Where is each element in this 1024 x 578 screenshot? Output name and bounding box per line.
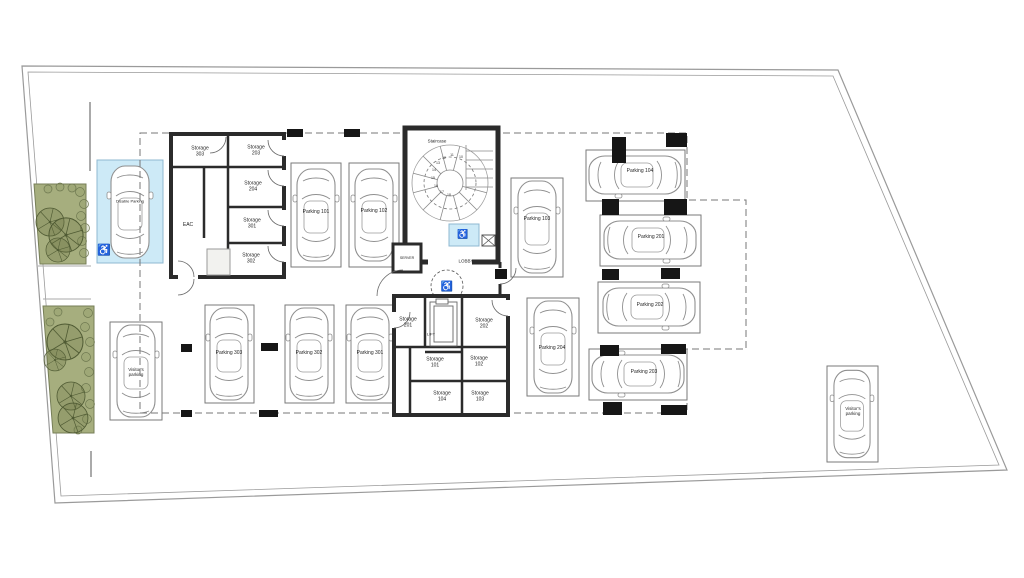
accessible-stair-landing bbox=[449, 224, 479, 246]
car-graphic bbox=[347, 308, 393, 400]
column bbox=[603, 402, 622, 415]
column bbox=[661, 344, 686, 354]
storage-block bbox=[171, 134, 284, 295]
column bbox=[495, 269, 507, 279]
car-graphic bbox=[514, 181, 560, 273]
car-graphic bbox=[530, 301, 576, 393]
column bbox=[664, 199, 687, 215]
column bbox=[666, 133, 687, 147]
server-room bbox=[393, 244, 421, 272]
column bbox=[600, 345, 619, 356]
car-graphic bbox=[113, 325, 159, 417]
car-graphic bbox=[107, 166, 153, 258]
parking-floor-plan: Staircase LOBBY LIFT SERVER EAC Storage … bbox=[0, 0, 1024, 578]
column bbox=[344, 129, 360, 137]
car-graphic bbox=[206, 308, 252, 400]
column bbox=[602, 199, 619, 215]
car-graphic bbox=[592, 351, 684, 397]
duct-box bbox=[482, 235, 495, 246]
car-graphic bbox=[589, 152, 681, 198]
shaft-box bbox=[207, 249, 230, 275]
landscape-beds bbox=[34, 183, 95, 434]
car-graphic bbox=[830, 370, 874, 457]
column bbox=[181, 410, 192, 417]
car-graphic bbox=[604, 217, 696, 263]
floor-plan-drawing bbox=[0, 0, 1024, 578]
car-graphic bbox=[603, 284, 695, 330]
car-graphic bbox=[293, 169, 339, 261]
column bbox=[661, 405, 687, 415]
staircase-block bbox=[405, 128, 498, 262]
tree-icon bbox=[44, 349, 66, 371]
tree-icon bbox=[58, 403, 88, 433]
tree-icon bbox=[46, 238, 70, 262]
column bbox=[261, 343, 278, 351]
column bbox=[287, 129, 303, 137]
car-graphic bbox=[286, 308, 332, 400]
column bbox=[612, 137, 626, 163]
column bbox=[602, 269, 619, 280]
car-graphic bbox=[351, 169, 397, 261]
column bbox=[259, 410, 278, 417]
column bbox=[661, 268, 680, 279]
column bbox=[181, 344, 192, 352]
lift-block bbox=[394, 296, 508, 415]
